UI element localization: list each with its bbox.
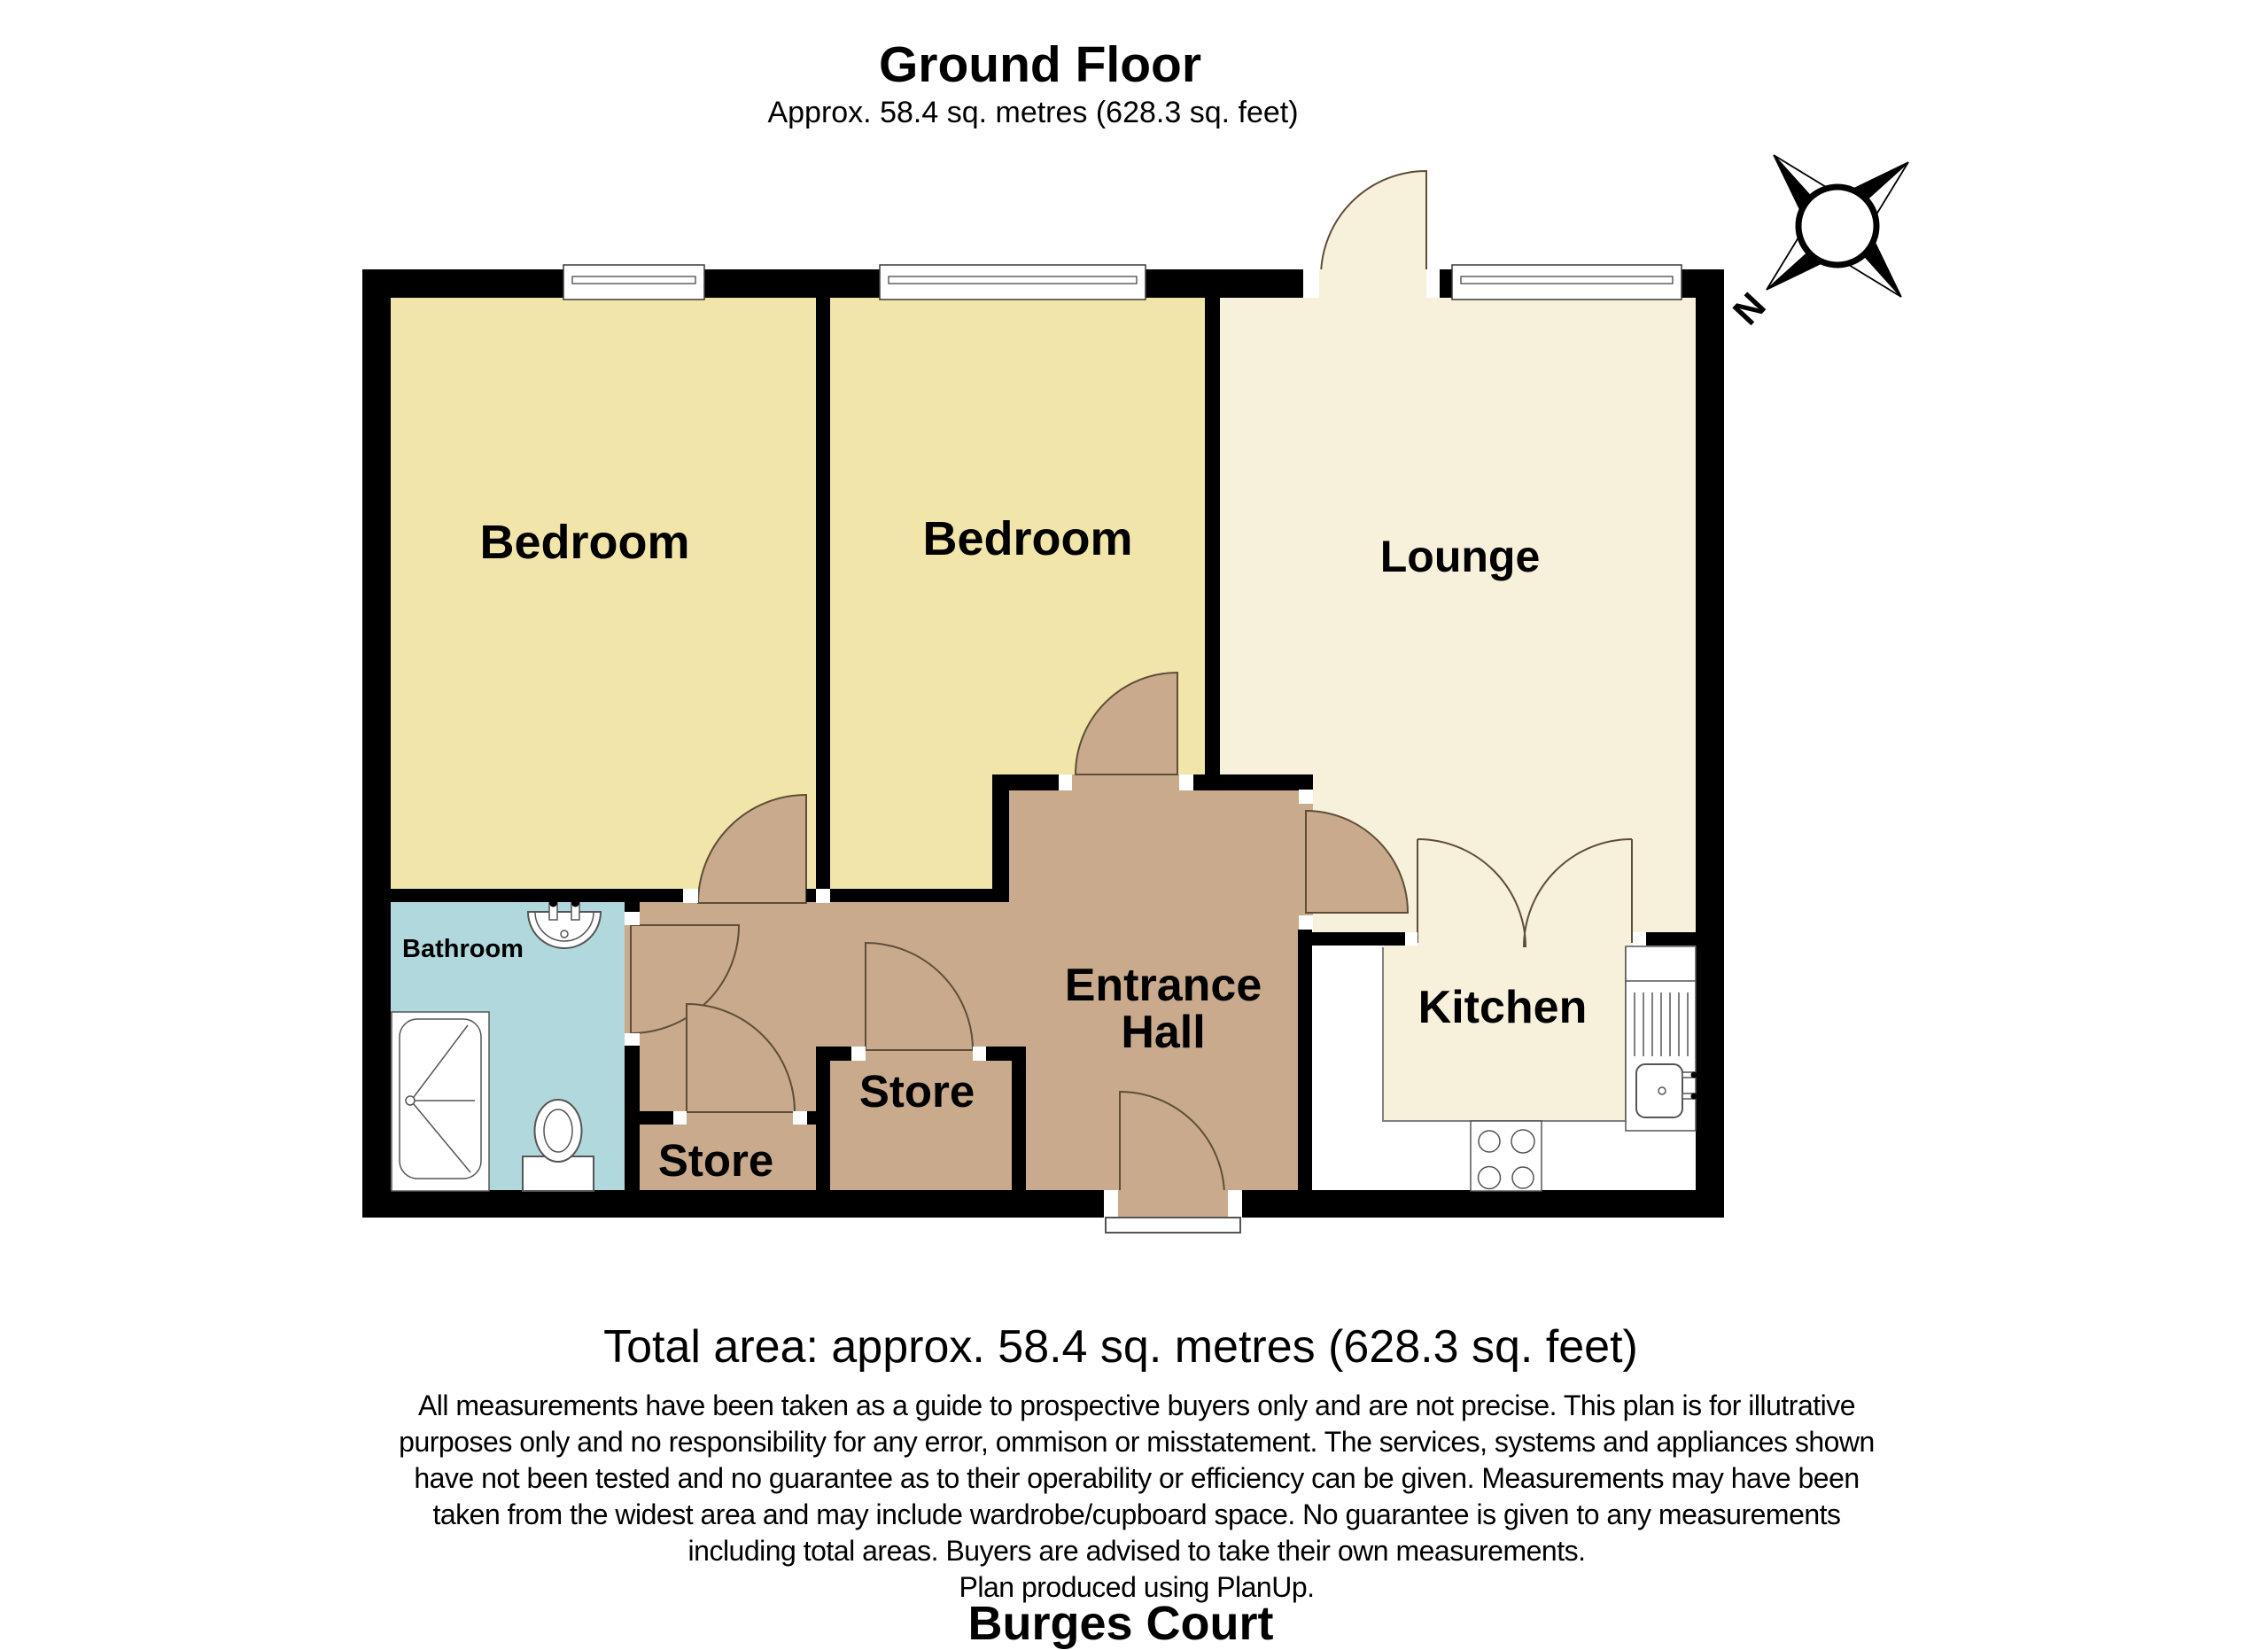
svg-text:Hall: Hall	[1121, 1007, 1205, 1058]
svg-text:All measurements have been tak: All measurements have been taken as a gu…	[418, 1389, 1855, 1421]
svg-text:Ground Floor: Ground Floor	[879, 36, 1201, 93]
svg-text:Entrance: Entrance	[1065, 960, 1262, 1011]
svg-text:Bedroom: Bedroom	[479, 516, 689, 569]
svg-text:Bedroom: Bedroom	[922, 512, 1132, 565]
svg-text:Store: Store	[658, 1135, 773, 1186]
svg-text:taken from the widest area and: taken from the widest area and may inclu…	[432, 1498, 1840, 1530]
svg-text:purposes only and no responsib: purposes only and no responsibility for …	[399, 1426, 1875, 1458]
svg-text:have not been tested and no gu: have not been tested and no guarantee as…	[414, 1462, 1859, 1494]
svg-text:Lounge: Lounge	[1380, 532, 1541, 581]
svg-text:Burges Court: Burges Court	[967, 1597, 1273, 1650]
svg-text:Approx. 58.4 sq. metres (628.3: Approx. 58.4 sq. metres (628.3 sq. feet)	[767, 96, 1298, 129]
svg-text:Bathroom: Bathroom	[402, 935, 524, 963]
svg-text:Kitchen: Kitchen	[1418, 982, 1588, 1033]
svg-text:Total area: approx. 58.4 sq. m: Total area: approx. 58.4 sq. metres (628…	[603, 1321, 1638, 1373]
svg-text:including total areas. Buyers: including total areas. Buyers are advise…	[688, 1535, 1586, 1567]
svg-text:Store: Store	[859, 1066, 975, 1117]
